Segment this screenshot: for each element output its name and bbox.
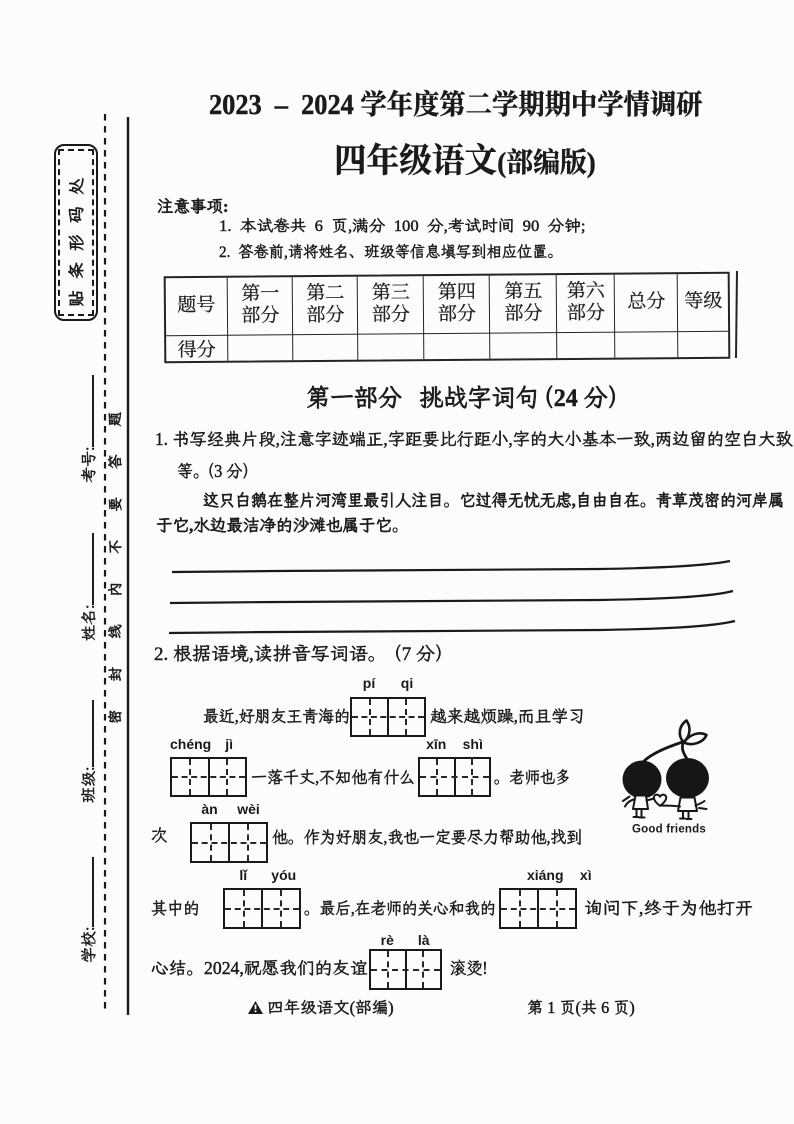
- svg-text:Good friends: Good friends: [632, 824, 706, 836]
